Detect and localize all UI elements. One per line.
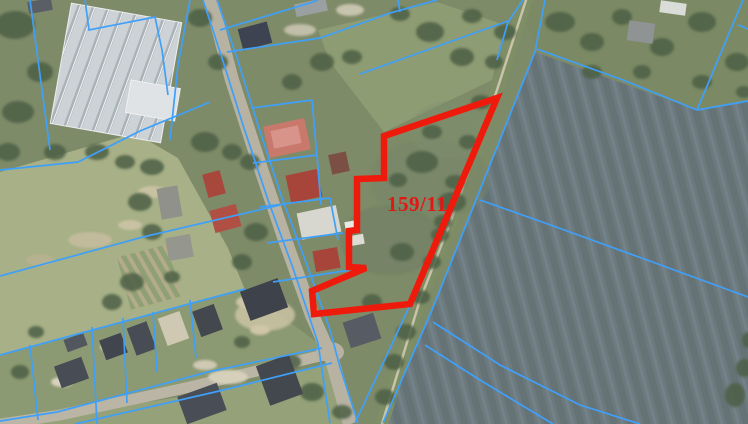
building-roof — [165, 234, 194, 261]
tree-canopy — [2, 101, 34, 123]
tree-canopy — [234, 336, 250, 348]
tree-canopy — [120, 273, 144, 291]
tree-canopy — [422, 125, 442, 139]
map-viewport[interactable]: 159/11 — [0, 0, 748, 424]
terrain-patch — [68, 232, 112, 248]
tree-canopy — [115, 155, 135, 169]
tree-canopy — [688, 12, 716, 32]
parcel-number-label: 159/11 — [387, 192, 447, 216]
tree-canopy — [342, 50, 362, 64]
terrain-patch — [26, 254, 54, 266]
tree-canopy — [450, 48, 474, 66]
tree-canopy — [44, 144, 66, 160]
aerial-photo-layer — [0, 0, 748, 424]
tree-canopy — [102, 294, 122, 310]
terrain-patch — [284, 24, 316, 36]
tree-canopy — [164, 271, 180, 283]
tree-canopy — [396, 324, 416, 340]
tree-canopy — [232, 254, 252, 270]
tree-canopy — [725, 383, 745, 407]
terrain-patch — [193, 360, 217, 370]
tree-canopy — [142, 224, 162, 240]
tree-canopy — [11, 365, 29, 379]
tree-canopy — [416, 22, 444, 42]
tree-canopy — [390, 243, 414, 261]
tree-canopy — [310, 53, 334, 71]
tree-canopy — [140, 159, 164, 175]
aerial-map-canvas: 159/11 — [0, 0, 748, 424]
tree-canopy — [545, 12, 575, 32]
building-roof — [627, 20, 656, 43]
tree-canopy — [28, 326, 44, 338]
terrain-patch — [208, 370, 248, 384]
tree-canopy — [332, 405, 352, 419]
tree-canopy — [222, 144, 242, 160]
tree-canopy — [389, 173, 407, 187]
tree-canopy — [650, 38, 674, 56]
tree-canopy — [462, 9, 482, 23]
tree-canopy — [485, 55, 503, 69]
tree-canopy — [128, 193, 152, 211]
tree-canopy — [300, 383, 324, 401]
tree-canopy — [244, 223, 268, 241]
terrain-patch — [336, 4, 364, 16]
tree-canopy — [612, 9, 632, 25]
tree-canopy — [633, 65, 651, 79]
tree-canopy — [580, 33, 604, 51]
tree-canopy — [406, 151, 438, 173]
tree-canopy — [725, 53, 748, 71]
tree-canopy — [282, 74, 302, 90]
terrain-patch — [118, 220, 142, 230]
tree-canopy — [191, 132, 219, 152]
building-roof — [312, 247, 340, 272]
